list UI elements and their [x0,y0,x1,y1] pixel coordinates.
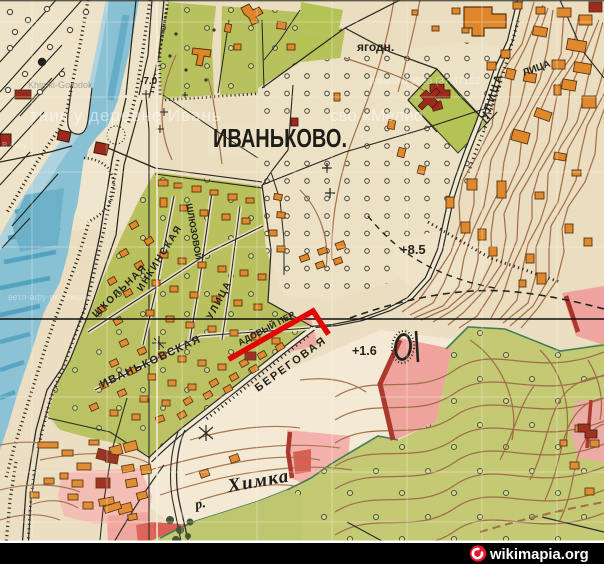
svg-text:wikimapia.org: wikimapia.org [489,547,589,563]
svg-text:сво «Мелио: сво «Мелио [330,106,423,125]
svg-text:зованию 9595 (37.47152: зованию 9595 (37.47152 [368,76,481,87]
svg-text:ИВАНЬКОВО.: ИВАНЬКОВО. [213,123,347,153]
svg-text:ветл-афу-вка писен: ветл-афу-вка писен [8,292,90,302]
svg-text:ягодн.: ягодн. [357,40,394,54]
svg-text:В лесу: В лесу [2,141,27,150]
svg-text:+1.6: +1.6 [352,344,377,358]
svg-text:Khimki-Gorodok: Khimki-Gorodok [28,80,93,90]
svg-text:-7.0: -7.0 [140,76,158,87]
svg-text:тник у деревне Ивань: тник у деревне Ивань [30,106,222,125]
svg-text:+8.5: +8.5 [400,242,426,257]
